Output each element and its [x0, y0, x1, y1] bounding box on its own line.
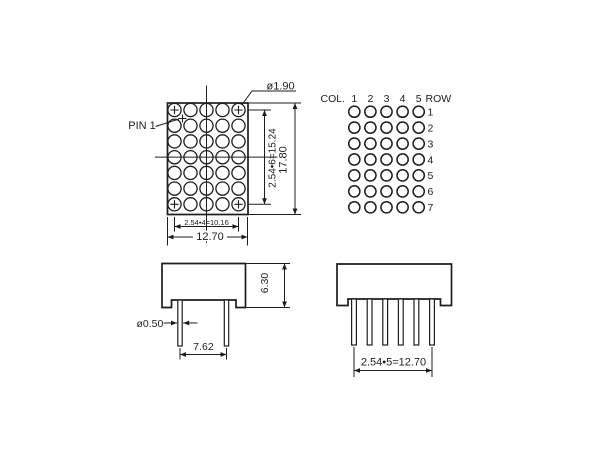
dim-col-span-label: 2.54•4=10.16 — [184, 218, 229, 227]
map-dot — [365, 170, 376, 181]
row-header-label: ROW — [426, 93, 452, 105]
row-number: 5 — [428, 170, 434, 182]
map-dot — [397, 154, 408, 165]
map-dot — [397, 170, 408, 181]
row-number: 4 — [428, 154, 434, 166]
map-dot — [381, 154, 392, 165]
map-dot — [349, 106, 360, 117]
map-dot — [381, 202, 392, 213]
pin-row-view: 2.54•5=12.70 — [337, 264, 452, 377]
col-number: 1 — [351, 93, 357, 105]
map-dot — [365, 202, 376, 213]
pin-diameter-label: ø0.50 — [137, 318, 164, 330]
map-dot — [397, 122, 408, 133]
map-dot — [413, 138, 424, 149]
drawing-canvas: PIN 1 ø1.90 2.54•6=15.24 17.80 2.54•4=10… — [0, 0, 600, 450]
row-number: 3 — [428, 138, 434, 150]
pin — [383, 299, 388, 345]
map-dot — [381, 170, 392, 181]
dim-height-label: 17.80 — [278, 146, 290, 174]
map-dot — [413, 106, 424, 117]
row-number: 7 — [428, 202, 434, 214]
pin — [414, 299, 419, 345]
map-dot — [349, 138, 360, 149]
map-dot — [365, 122, 376, 133]
row-number: 2 — [428, 122, 434, 134]
dot-matrix-display-drawing: PIN 1 ø1.90 2.54•6=15.24 17.80 2.54•4=10… — [0, 0, 600, 450]
pin — [224, 300, 228, 346]
map-dot — [413, 186, 424, 197]
map-dot — [381, 138, 392, 149]
col-number: 4 — [400, 93, 406, 105]
col-header-label: COL. — [321, 93, 346, 105]
map-dot — [413, 202, 424, 213]
pin — [178, 300, 182, 346]
dim-body-height-label: 6.30 — [259, 273, 271, 294]
map-dot — [381, 122, 392, 133]
dim-width-label: 12.70 — [196, 231, 224, 243]
col-number: 2 — [367, 93, 373, 105]
map-dot — [413, 170, 424, 181]
dot-diameter-leader-line — [243, 91, 297, 104]
map-dot — [397, 138, 408, 149]
dim-pin-spacing-label: 7.62 — [193, 341, 214, 353]
col-number: 5 — [416, 93, 422, 105]
matrix-map: COL. 1 2 3 4 5 ROW 1 2 3 4 5 6 7 — [321, 93, 452, 214]
pin — [398, 299, 403, 345]
map-dot — [365, 138, 376, 149]
map-dot — [381, 186, 392, 197]
dot-diameter-label: ø1.90 — [267, 81, 295, 93]
map-dot — [349, 122, 360, 133]
map-dot — [365, 154, 376, 165]
pin1-label: PIN 1 — [128, 120, 156, 132]
pin — [367, 299, 372, 345]
map-dot — [349, 186, 360, 197]
map-dot — [349, 154, 360, 165]
map-dot — [413, 154, 424, 165]
dim-pin-row-label: 2.54•5=12.70 — [361, 357, 426, 369]
row-number: 6 — [428, 186, 434, 198]
map-dot-grid — [349, 106, 425, 213]
col-number: 3 — [384, 93, 390, 105]
side-view: 6.30 ø0.50 7.62 — [137, 264, 291, 360]
map-dot — [397, 106, 408, 117]
map-dot — [365, 106, 376, 117]
pin — [430, 299, 435, 345]
map-dot — [365, 186, 376, 197]
pin-row-pins — [352, 299, 435, 345]
row-number: 1 — [428, 107, 434, 119]
map-dot — [413, 122, 424, 133]
map-dot — [397, 202, 408, 213]
map-dot — [349, 202, 360, 213]
map-dot — [349, 170, 360, 181]
pin — [352, 299, 357, 345]
map-dot — [397, 186, 408, 197]
map-dot — [381, 106, 392, 117]
side-body-outline — [162, 264, 246, 308]
